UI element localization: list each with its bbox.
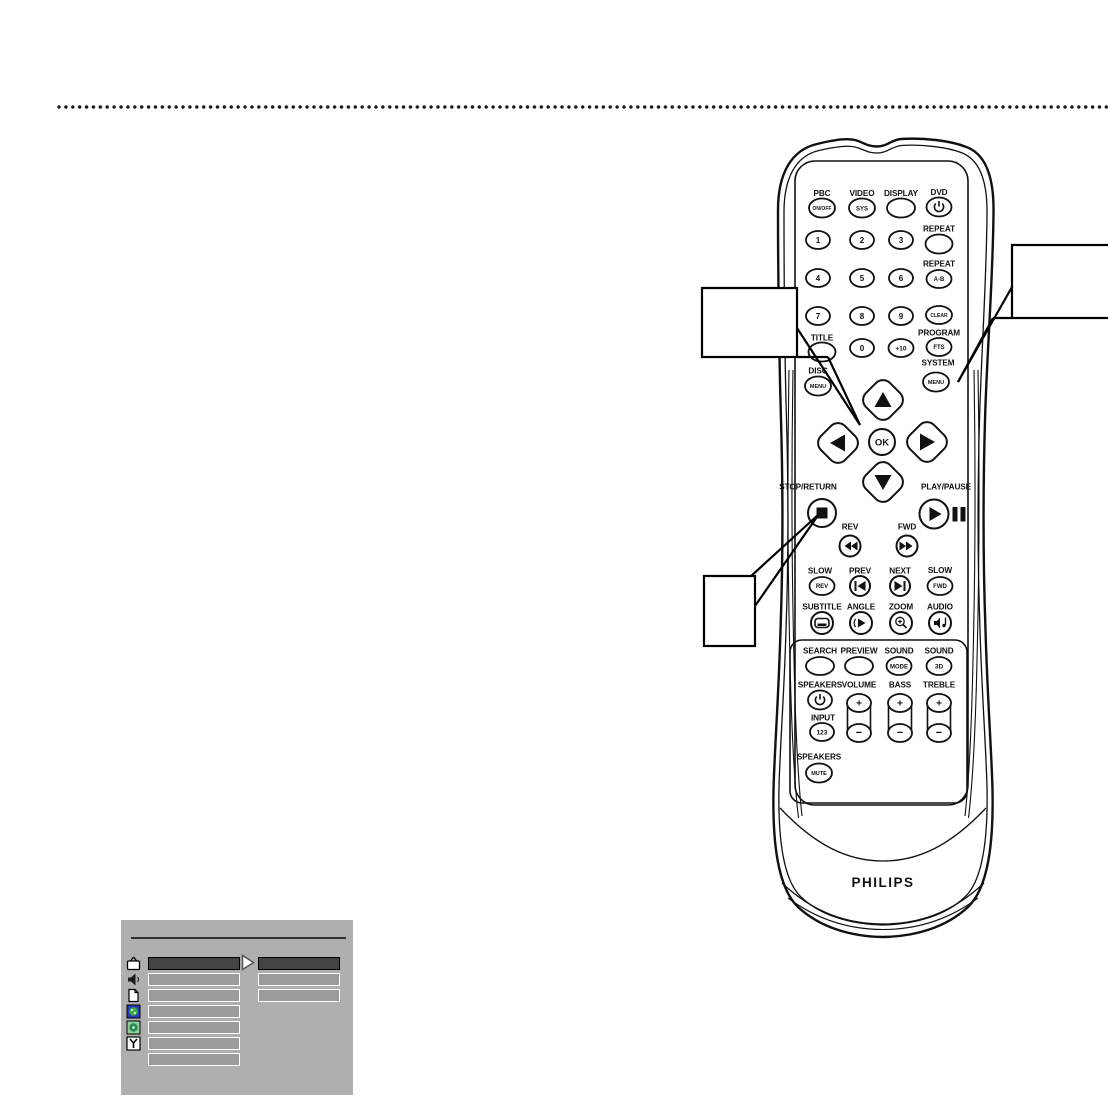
angle-button: ANGLE bbox=[847, 603, 876, 635]
digit-5-button: 5 bbox=[850, 269, 874, 287]
osd-row bbox=[148, 1021, 240, 1034]
input-text: 123 bbox=[817, 730, 828, 737]
search-shape bbox=[806, 657, 834, 675]
repeat-ab-button: REPEAT A-B bbox=[923, 260, 955, 289]
video-button-text: SYS bbox=[856, 207, 868, 213]
digit-8-text: 8 bbox=[860, 312, 865, 321]
bass-label: BASS bbox=[889, 681, 912, 690]
fts-button-text: FTS bbox=[933, 345, 944, 351]
callout-ok-line2 bbox=[828, 357, 860, 425]
digit-9-text: 9 bbox=[899, 312, 904, 321]
bass-minus-text: − bbox=[897, 727, 903, 739]
play-pause-label: PLAY/PAUSE bbox=[921, 483, 972, 492]
bass-rocker: BASS + − bbox=[888, 681, 912, 743]
disc-icon bbox=[126, 1020, 141, 1035]
digit-3-button: 3 bbox=[889, 231, 913, 249]
slow-rev-text: REV bbox=[816, 584, 828, 590]
remote-inner-shell bbox=[779, 145, 987, 925]
callout-box-stop-return bbox=[704, 576, 755, 646]
digit-2-button: 2 bbox=[850, 231, 874, 249]
callout-box-ok bbox=[702, 288, 797, 357]
preview-button: PREVIEW bbox=[840, 647, 877, 676]
osd-menu-screenshot bbox=[121, 920, 353, 1095]
search-label: SEARCH bbox=[803, 647, 837, 656]
sound-mode-label: SOUND bbox=[884, 647, 913, 656]
digit-0-text: 0 bbox=[860, 344, 865, 353]
speakers-mute-button: SPEAKERS MUTE bbox=[797, 753, 842, 783]
prev-button: PREV bbox=[849, 567, 872, 597]
sound-3d-button: SOUND 3D bbox=[924, 647, 953, 676]
clear-button-text: CLEAR bbox=[930, 313, 948, 319]
display-button-shape bbox=[887, 199, 915, 218]
digit-9-button: 9 bbox=[889, 307, 913, 325]
slow-fwd-button: SLOW FWD bbox=[928, 566, 953, 595]
sound-mode-button: SOUND MODE bbox=[884, 647, 913, 676]
osd-row bbox=[148, 1053, 240, 1066]
remote-outer-shell bbox=[773, 139, 993, 937]
video-label: VIDEO bbox=[850, 189, 876, 198]
sound-3d-text: 3D bbox=[935, 664, 944, 671]
osd-subrow bbox=[258, 989, 340, 1002]
speakers-mute-text: MUTE bbox=[811, 771, 827, 777]
osd-row-selected bbox=[148, 957, 240, 970]
zoom-label: ZOOM bbox=[889, 603, 913, 612]
volume-label: VOLUME bbox=[842, 681, 877, 690]
display-label: DISPLAY bbox=[884, 189, 919, 198]
remote-bottom-curve bbox=[780, 808, 986, 861]
slow-rev-button: SLOW REV bbox=[808, 567, 835, 596]
dvd-label: DVD bbox=[931, 188, 948, 197]
digit-6-text: 6 bbox=[899, 274, 904, 283]
speakers-power-button: SPEAKERS bbox=[798, 681, 843, 710]
display-button: DISPLAY bbox=[884, 189, 919, 218]
repeat-ab-label: REPEAT bbox=[923, 260, 955, 269]
callout-box-system-menu bbox=[1012, 245, 1108, 318]
osd-title-rule bbox=[131, 937, 346, 939]
plus10-button: +10 bbox=[889, 339, 914, 357]
bass-plus-text: + bbox=[897, 699, 903, 710]
osd-row bbox=[148, 1037, 240, 1050]
program-fts-button: PROGRAM FTS bbox=[918, 329, 960, 357]
osd-subrow-selected bbox=[258, 957, 340, 970]
slow-fwd-text: FWD bbox=[933, 584, 947, 590]
digit-5-text: 5 bbox=[860, 274, 865, 283]
treble-rocker: TREBLE + − bbox=[923, 681, 956, 743]
pause-icon bbox=[953, 507, 958, 522]
video-sys-button: VIDEO SYS bbox=[849, 189, 875, 218]
pbc-button: PBC ON/OFF bbox=[809, 189, 835, 218]
repeat-button: REPEAT bbox=[923, 225, 955, 254]
osd-row bbox=[148, 989, 240, 1002]
preview-shape bbox=[845, 657, 873, 675]
rev-button: REV bbox=[840, 523, 861, 557]
next-button: NEXT bbox=[889, 567, 911, 597]
sound-3d-label: SOUND bbox=[924, 647, 953, 656]
fwd-button: FWD bbox=[897, 523, 918, 557]
page-icon bbox=[126, 988, 141, 1003]
philips-logo: PHILIPS bbox=[851, 875, 914, 890]
treble-label: TREBLE bbox=[923, 681, 956, 690]
remote-body: PBC ON/OFF VIDEO SYS DISPLAY DVD bbox=[773, 139, 993, 937]
digit-4-text: 4 bbox=[816, 274, 821, 283]
system-menu-text: MENU bbox=[928, 380, 944, 386]
zoom-shape bbox=[890, 612, 912, 634]
digit-1-text: 1 bbox=[816, 236, 821, 245]
callout-ok-line1 bbox=[797, 328, 860, 425]
pause-icon2 bbox=[961, 507, 966, 522]
input-button: INPUT 123 bbox=[810, 714, 835, 742]
speakers-mute-label: SPEAKERS bbox=[797, 753, 842, 762]
digit-1-button: 1 bbox=[806, 231, 830, 249]
subtitle-button: SUBTITLE bbox=[802, 603, 842, 635]
access-icon bbox=[126, 1004, 141, 1019]
next-label: NEXT bbox=[889, 567, 911, 576]
ok-button-text: OK bbox=[875, 438, 889, 449]
title-label: TITLE bbox=[811, 334, 834, 343]
angle-label: ANGLE bbox=[847, 603, 876, 612]
input-label: INPUT bbox=[811, 714, 835, 723]
volume-minus-text: − bbox=[856, 727, 862, 739]
fwd-label: FWD bbox=[898, 523, 917, 532]
osd-cursor-arrow-icon bbox=[241, 954, 255, 971]
digit-0-button: 0 bbox=[850, 339, 874, 357]
subtitle-label: SUBTITLE bbox=[802, 603, 842, 612]
tv-icon bbox=[126, 956, 141, 971]
osd-subrow bbox=[258, 973, 340, 986]
play-pause-button: PLAY/PAUSE bbox=[920, 483, 972, 529]
sound-mode-text: MODE bbox=[890, 665, 908, 671]
audio-button: AUDIO bbox=[927, 603, 954, 635]
pbc-button-text: ON/OFF bbox=[813, 206, 832, 212]
prev-label: PREV bbox=[849, 567, 872, 576]
manual-page: PBC ON/OFF VIDEO SYS DISPLAY DVD bbox=[0, 0, 1108, 1097]
program-label: PROGRAM bbox=[918, 329, 960, 338]
digit-7-text: 7 bbox=[816, 312, 821, 321]
digit-6-button: 6 bbox=[889, 269, 913, 287]
disc-menu-button: DISC MENU bbox=[805, 367, 831, 396]
preview-label: PREVIEW bbox=[840, 647, 877, 656]
repeat-button-shape bbox=[926, 235, 953, 254]
slow-rev-label: SLOW bbox=[808, 567, 833, 576]
search-button: SEARCH bbox=[803, 647, 837, 676]
digit-2-text: 2 bbox=[860, 236, 865, 245]
dvd-button-shape bbox=[927, 198, 952, 217]
rev-label: REV bbox=[842, 523, 859, 532]
osd-row bbox=[148, 973, 240, 986]
treble-plus-text: + bbox=[936, 699, 942, 710]
clear-button: CLEAR bbox=[926, 306, 952, 324]
audio-label: AUDIO bbox=[927, 603, 954, 612]
slow-fwd-label: SLOW bbox=[928, 566, 953, 575]
speakers-label: SPEAKERS bbox=[798, 681, 843, 690]
volume-rocker: VOLUME + − bbox=[842, 681, 877, 743]
treble-minus-text: − bbox=[936, 727, 942, 739]
plus10-text: +10 bbox=[895, 346, 906, 353]
dvd-power-button: DVD bbox=[927, 188, 952, 217]
system-label: SYSTEM bbox=[921, 359, 954, 368]
repeat-ab-text: A-B bbox=[934, 277, 945, 283]
disc-menu-text: MENU bbox=[810, 384, 826, 390]
digit-8-button: 8 bbox=[850, 307, 874, 325]
speakers-power-shape bbox=[808, 691, 832, 710]
stop-return-label: STOP/RETURN bbox=[779, 483, 837, 492]
pbc-label: PBC bbox=[814, 189, 831, 198]
digit-4-button: 4 bbox=[806, 269, 830, 287]
system-menu-button: SYSTEM MENU bbox=[921, 359, 954, 392]
speaker-icon bbox=[126, 972, 141, 987]
zoom-button: ZOOM bbox=[889, 603, 913, 635]
digit-3-text: 3 bbox=[899, 236, 904, 245]
osd-row bbox=[148, 1005, 240, 1018]
setup-wrench-icon bbox=[126, 1036, 141, 1051]
volume-plus-text: + bbox=[856, 699, 862, 710]
repeat-label: REPEAT bbox=[923, 225, 955, 234]
digit-7-button: 7 bbox=[806, 307, 830, 325]
